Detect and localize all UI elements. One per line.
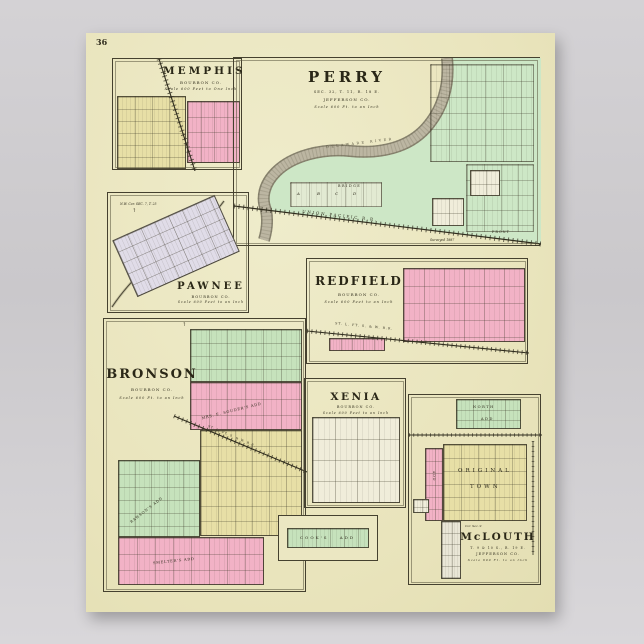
- perry-scale: Scale 600 Ft. to an Inch: [292, 105, 402, 109]
- perry-survey-note: Surveyed 1887: [430, 239, 454, 242]
- perry-white-blocks-b: [432, 198, 464, 226]
- perry-block-letter-b: B: [317, 192, 320, 196]
- bronson-county: BOURBON CO.: [106, 387, 198, 392]
- pawnee-north-arrow-icon: ↑: [132, 209, 136, 214]
- perry-block-letter-c: C: [335, 192, 338, 196]
- pawnee-corner-note: N.W. Cor. SEC. 7, T. 25: [120, 203, 157, 206]
- screenshot-root: { "page_number": "36", "palette": { "bac…: [0, 0, 644, 644]
- bronson-green-plat: [190, 329, 302, 382]
- xenia-title-block: XENIA BOURBON CO. Scale 600 Feet to an I…: [315, 391, 397, 415]
- cooks-addition-label: COOK'S ADD: [300, 536, 355, 540]
- perry-title: PERRY: [292, 68, 402, 87]
- redfield-pink-plat: [403, 268, 525, 342]
- xenia-plat: [312, 417, 400, 503]
- perry-map: A B C D PERRY SEC. 32, T. 11, R. 18 E. J…: [233, 57, 540, 246]
- pawnee-scale: Scale 600 Feet to an Inch: [176, 300, 246, 304]
- redfield-title: REDFIELD: [313, 274, 405, 289]
- mclouth-north-add-label-2: ADD: [481, 418, 494, 422]
- xenia-title: XENIA: [315, 391, 397, 404]
- xenia-map: XENIA BOURBON CO. Scale 600 Feet to an I…: [304, 378, 406, 508]
- perry-railroad-label: UNION PACIFIC R.R.: [302, 210, 378, 223]
- perry-grid-north: [430, 64, 534, 162]
- perry-county: JEFFERSON CO.: [292, 97, 402, 102]
- mclouth-original-label: ORIGINAL: [458, 469, 512, 475]
- bronson-add-mid-label: MRS. E. SOUDER'S ADD: [201, 403, 262, 421]
- pawnee-title: PAWNEE: [176, 281, 246, 294]
- bronson-map: MRS. E. SOUDER'S ADD RAWSON'S ADD SMELTE…: [103, 318, 306, 592]
- cooks-addition-plat: COOK'S ADD: [287, 528, 369, 548]
- pawnee-title-block: PAWNEE BOURBON CO. Scale 600 Feet to an …: [176, 281, 246, 304]
- perry-block-letter-a: A: [297, 192, 300, 196]
- mclouth-north-add-plat: NORTH ADD: [456, 399, 521, 429]
- mclouth-corner-note: Cor. Sec. 9: [465, 525, 481, 528]
- mclouth-county: JEFFERSON CO.: [457, 552, 539, 556]
- bronson-add-lower-label: RAWSON'S ADD: [130, 497, 164, 524]
- pawnee-map: N.W. Cor. SEC. 7, T. 25 ↑ PAWNEE BOURBON…: [107, 192, 249, 313]
- perry-section: SEC. 32, T. 11, R. 18 E.: [292, 90, 402, 94]
- memphis-title: MEMPHIS: [163, 65, 239, 78]
- memphis-yellow-plat: [117, 96, 186, 169]
- mclouth-title-block: McLOUTH T. 9 & 10 S., R. 19 E. JEFFERSON…: [457, 531, 539, 562]
- bronson-scale: Scale 600 Ft. to an Inch: [106, 396, 198, 400]
- memphis-title-block: MEMPHIS BOURBON CO. Scale 600 Feet to On…: [163, 65, 239, 91]
- mclouth-township: T. 9 & 10 S., R. 19 E.: [457, 546, 539, 550]
- bronson-north-arrow-icon: ↑: [182, 323, 186, 328]
- memphis-scale: Scale 600 Feet to One Inch: [163, 87, 239, 91]
- mclouth-title: McLOUTH: [457, 531, 539, 544]
- perry-block-row: A B C D: [290, 182, 382, 207]
- cooks-addition-box: COOK'S ADD: [278, 515, 378, 561]
- page-number: 36: [96, 38, 107, 46]
- memphis-county: BOURBON CO.: [163, 80, 239, 85]
- mclouth-town-label: TOWN: [470, 485, 501, 491]
- atlas-page: 36 MEMPHIS BOURBON CO. Scale 600 Feet to…: [86, 33, 555, 612]
- redfield-scale: Scale 600 Feet to an Inch: [313, 300, 405, 304]
- redfield-title-block: REDFIELD BOURBON CO. Scale 600 Feet to a…: [313, 274, 405, 304]
- redfield-railroad-label: ST. L. FT. S. & W. R.R.: [335, 322, 393, 331]
- bronson-green-lower-plat: RAWSON'S ADD: [118, 460, 200, 537]
- bronson-pink-plat: MRS. E. SOUDER'S ADD: [190, 382, 302, 430]
- xenia-scale: Scale 600 Feet to an Inch: [315, 411, 397, 415]
- perry-bridge-label: BRIDGE: [338, 185, 361, 188]
- pawnee-county: BOURBON CO.: [176, 295, 246, 299]
- redfield-county: BOURBON CO.: [313, 292, 405, 297]
- mclouth-map: NORTH ADD ADD ORIGINAL TOWN Cor. Sec. 9 …: [408, 394, 541, 585]
- bronson-add-bottom-label: SMELTER'S ADD: [153, 558, 195, 566]
- bronson-title: BRONSON: [106, 367, 198, 383]
- bronson-pink-bottom-plat: SMELTER'S ADD: [118, 537, 264, 585]
- perry-white-blocks-a: [470, 170, 500, 196]
- perry-block-letter-d: D: [353, 192, 356, 196]
- mclouth-scale: Scale 600 Ft. to an Inch: [457, 559, 539, 563]
- redfield-map: REDFIELD BOURBON CO. Scale 600 Feet to a…: [306, 258, 528, 364]
- mclouth-north-add-label-1: NORTH: [473, 406, 495, 410]
- mclouth-original-town-plat: ORIGINAL TOWN: [443, 444, 527, 521]
- mclouth-pink-add-label: ADD: [432, 471, 435, 481]
- memphis-map: MEMPHIS BOURBON CO. Scale 600 Feet to On…: [112, 58, 242, 170]
- redfield-small-plat: [329, 338, 385, 351]
- perry-title-block: PERRY SEC. 32, T. 11, R. 18 E. JEFFERSON…: [292, 68, 402, 109]
- perry-river-label: DELAWARE RIVER: [326, 138, 394, 150]
- bronson-title-block: BRONSON BOURBON CO. Scale 600 Ft. to an …: [106, 367, 198, 401]
- xenia-county: BOURBON CO.: [315, 405, 397, 409]
- perry-front-street-label: FRONT: [492, 231, 510, 234]
- mclouth-small-plat: [413, 499, 429, 513]
